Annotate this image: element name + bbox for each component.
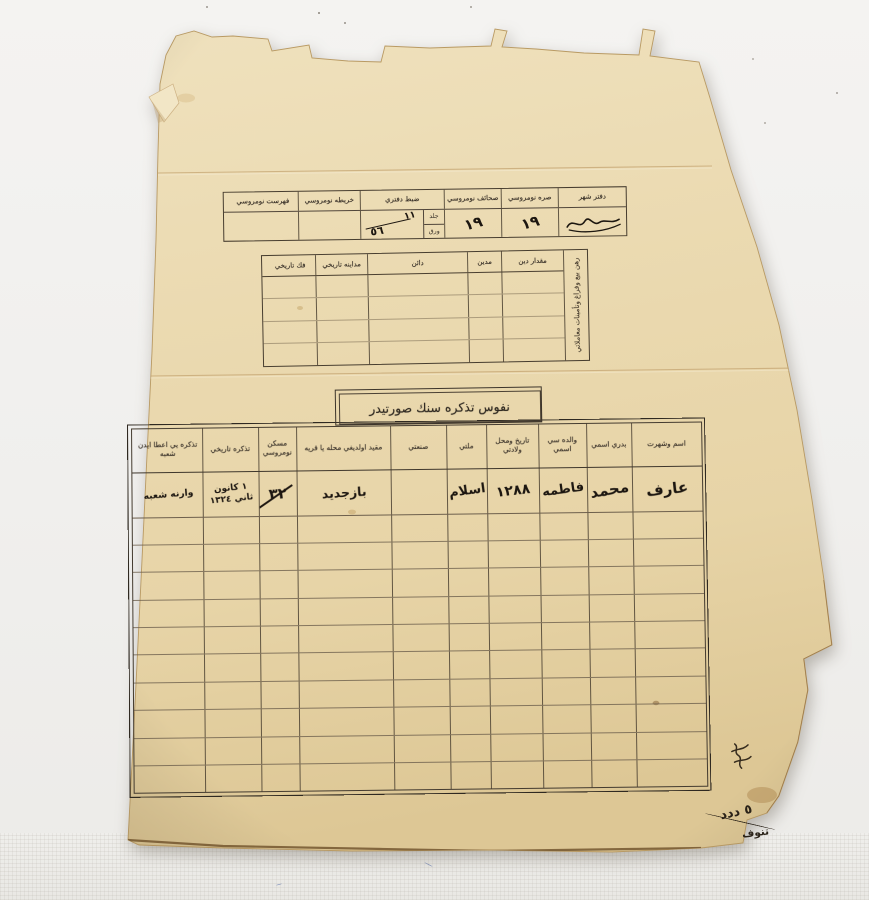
empty-cell bbox=[448, 651, 489, 678]
empty-cell bbox=[541, 650, 590, 677]
empty-cell bbox=[490, 761, 543, 788]
entry-religion-cell: اسلام bbox=[446, 469, 487, 514]
empty-cell bbox=[299, 763, 394, 791]
empty-cell bbox=[203, 627, 259, 654]
column-header-creditor: دائن bbox=[367, 252, 467, 274]
empty-cell bbox=[448, 624, 488, 651]
photo-stage: دفتر شهر صره نومروسي صحائف نومروسي ضبط د… bbox=[0, 0, 869, 900]
stain bbox=[747, 787, 777, 803]
empty-cell bbox=[266, 298, 316, 320]
empty-cell bbox=[634, 649, 705, 676]
census-inner-frame: اسم وشهرت بدري اسمي والده سي اسمي تاريخ … bbox=[131, 421, 708, 794]
column-header-residence-no: مسكن نومروسي bbox=[258, 427, 296, 470]
handwritten-religion: اسلام bbox=[448, 481, 486, 501]
column-header-mother-name: والده سي اسمي bbox=[538, 423, 587, 467]
empty-cell bbox=[368, 318, 468, 341]
signature-scribble bbox=[564, 212, 620, 235]
column-header-registered-place: مقيد اولديغي محله يا قريه bbox=[296, 426, 391, 470]
handwritten-father-name: محمد bbox=[589, 477, 630, 501]
empty-cell bbox=[204, 765, 261, 792]
entry-craft-cell bbox=[390, 469, 447, 514]
empty-cell bbox=[469, 340, 503, 362]
empty-cell bbox=[588, 567, 634, 594]
empty-cell bbox=[450, 762, 491, 789]
empty-cell bbox=[540, 623, 589, 650]
empty-cell bbox=[259, 571, 297, 598]
empty-cell bbox=[258, 516, 296, 543]
handwritten-issuing-branch: وارنه شعبه bbox=[143, 487, 194, 503]
handwritten-name: عارف bbox=[645, 477, 689, 499]
empty-cell bbox=[260, 709, 298, 736]
empty-cell bbox=[488, 596, 541, 623]
empty-cell bbox=[542, 761, 591, 788]
transactions-table: رهن بيع وفراغ وتأمينات معاملاتي مقدار دي… bbox=[261, 249, 590, 367]
empty-cell bbox=[136, 710, 205, 738]
zabt-defteri-value-cell: جلد ورق ١١ ٥٦ bbox=[360, 210, 444, 239]
empty-cell bbox=[136, 766, 205, 794]
empty-cell bbox=[317, 342, 369, 364]
varak-label: ورق bbox=[424, 224, 444, 238]
empty-cell bbox=[501, 271, 563, 294]
empty-cell bbox=[447, 514, 487, 541]
empty-cell bbox=[633, 594, 704, 621]
empty-cell bbox=[203, 572, 259, 599]
empty-cell bbox=[590, 705, 636, 732]
empty-cell bbox=[135, 627, 203, 654]
empty-cell bbox=[632, 539, 703, 566]
empty-cell bbox=[591, 760, 637, 787]
empty-cell bbox=[259, 599, 297, 626]
jild-label: جلد bbox=[424, 210, 444, 225]
empty-cell bbox=[259, 626, 297, 653]
empty-cell bbox=[447, 569, 487, 596]
column-header-fihrist-no: فهرست نومروسي bbox=[228, 192, 298, 212]
column-header-release-date: فك تاريخي bbox=[265, 255, 315, 276]
column-header-religion: ملتي bbox=[446, 425, 487, 469]
empty-cell bbox=[634, 621, 705, 648]
empty-cell bbox=[489, 678, 542, 705]
empty-cell bbox=[135, 683, 204, 710]
empty-cell bbox=[487, 568, 540, 595]
empty-cell bbox=[449, 734, 490, 761]
side-label-cell: رهن بيع وفراغ وتأمينات معاملاتي bbox=[563, 250, 589, 360]
reference-value-row: ١٩ ١٩ جلد ورق ١١ ٥٦ bbox=[224, 207, 626, 241]
empty-cell bbox=[203, 599, 259, 626]
empty-cell bbox=[134, 517, 202, 544]
empty-cell bbox=[539, 540, 587, 567]
empty-cell bbox=[502, 316, 564, 339]
empty-cell bbox=[636, 759, 707, 787]
empty-cell bbox=[316, 320, 368, 342]
empty-cell bbox=[588, 595, 634, 622]
empty-cell bbox=[392, 624, 449, 651]
empty-cell bbox=[587, 512, 632, 539]
empty-cell bbox=[589, 650, 635, 677]
empty-cell bbox=[202, 517, 258, 544]
empty-cell bbox=[135, 600, 203, 627]
column-header-name: اسم وشهرت bbox=[631, 422, 702, 466]
empty-cell bbox=[502, 294, 564, 317]
column-header-defter: دفتر شهر bbox=[558, 187, 626, 207]
empty-cell bbox=[589, 622, 635, 649]
empty-cell bbox=[261, 764, 299, 791]
fihrist-no-value-cell bbox=[228, 212, 298, 241]
empty-cell bbox=[134, 545, 202, 572]
entry-father-cell: محمد bbox=[586, 467, 632, 512]
entry-place-cell: بازجديد bbox=[296, 470, 391, 515]
empty-table-row bbox=[134, 759, 707, 793]
empty-cell bbox=[448, 596, 488, 623]
empty-cell bbox=[590, 733, 636, 760]
column-header-birth: تاريخ ومحل ولادتي bbox=[486, 424, 539, 468]
entry-mother-cell: فاطمه bbox=[538, 467, 587, 512]
empty-cell bbox=[487, 513, 539, 540]
column-header-sahife-no: صحائف نومروسي bbox=[444, 189, 501, 209]
empty-cell bbox=[203, 544, 259, 571]
handwritten-place: بازجديد bbox=[321, 484, 367, 502]
empty-cell bbox=[267, 343, 317, 365]
empty-cell bbox=[136, 738, 205, 766]
empty-cell bbox=[260, 681, 298, 708]
jild-varak-subcells: جلد ورق bbox=[423, 210, 444, 238]
empty-cell bbox=[260, 654, 298, 681]
jild-varak-values: ١١ ٥٦ bbox=[361, 210, 423, 239]
empty-cell bbox=[298, 625, 393, 653]
empty-cell bbox=[259, 544, 297, 571]
empty-cell bbox=[540, 568, 589, 595]
empty-cell bbox=[391, 569, 447, 596]
empty-cell bbox=[635, 732, 706, 760]
census-title-tab: نفوس تذكره سنك صورتيدر bbox=[335, 386, 543, 425]
stain bbox=[780, 800, 800, 812]
empty-cell bbox=[393, 735, 450, 762]
empty-cell bbox=[296, 515, 390, 543]
empty-cell bbox=[391, 542, 447, 569]
census-title: نفوس تذكره سنك صورتيدر bbox=[338, 390, 540, 424]
register-reference-table: دفتر شهر صره نومروسي صحائف نومروسي ضبط د… bbox=[223, 186, 628, 242]
empty-cell bbox=[635, 704, 706, 732]
empty-cell bbox=[449, 707, 490, 734]
empty-cell bbox=[467, 273, 501, 295]
empty-cell bbox=[540, 595, 589, 622]
empty-cell bbox=[369, 340, 469, 363]
empty-cell bbox=[490, 734, 543, 761]
empty-cell bbox=[367, 273, 467, 296]
empty-cell bbox=[589, 677, 635, 704]
census-entry-row: عارف محمد فاطمه ١٢٨٨ اسلام بازجديد ٣٢ bbox=[132, 466, 702, 518]
column-header-debt-date: مداينه تاريخي bbox=[315, 254, 367, 275]
empty-cell bbox=[204, 737, 261, 764]
entry-residence-cell: ٣٢ bbox=[258, 471, 296, 516]
empty-cell bbox=[587, 539, 633, 566]
empty-cell bbox=[393, 707, 450, 734]
column-header-craft: صنعتي bbox=[390, 425, 447, 469]
column-header-sira-no: صره نومروسي bbox=[501, 188, 558, 208]
empty-cell bbox=[503, 339, 565, 362]
census-header-row: اسم وشهرت بدري اسمي والده سي اسمي تاريخ … bbox=[132, 422, 702, 473]
empty-cell bbox=[135, 655, 204, 682]
empty-cell bbox=[135, 572, 203, 599]
column-header-certificate-date: تذكره تاريخي bbox=[202, 427, 258, 471]
empty-cell bbox=[393, 680, 450, 707]
empty-cell bbox=[265, 276, 315, 298]
empty-cell bbox=[297, 542, 392, 570]
empty-cell bbox=[541, 678, 590, 705]
empty-cell bbox=[447, 541, 487, 568]
empty-cell bbox=[204, 710, 261, 737]
empty-cell bbox=[298, 680, 393, 708]
column-header-debt-amount: مقدار دين bbox=[501, 250, 563, 271]
empty-cell bbox=[392, 652, 449, 679]
empty-cell bbox=[449, 679, 490, 706]
empty-cell bbox=[316, 297, 368, 319]
empty-cell bbox=[468, 317, 502, 339]
handwritten-number: ١٩ bbox=[519, 211, 541, 233]
empty-cell bbox=[392, 597, 449, 624]
empty-cell bbox=[266, 321, 316, 343]
empty-cell bbox=[315, 275, 367, 297]
empty-cell bbox=[299, 736, 394, 764]
empty-cell bbox=[298, 708, 393, 736]
handwritten-number: ٥٦ bbox=[369, 224, 384, 239]
empty-cell bbox=[542, 733, 591, 760]
empty-cell bbox=[539, 513, 587, 540]
ink-mark bbox=[727, 739, 758, 777]
empty-cell bbox=[298, 653, 393, 681]
empty-cell bbox=[203, 654, 259, 681]
sira-no-value-cell: ١٩ bbox=[501, 208, 558, 237]
empty-cell bbox=[487, 541, 539, 568]
empty-cell bbox=[297, 570, 392, 598]
column-header-harita-no: خريطه نومروسي bbox=[298, 191, 360, 211]
empty-cell bbox=[260, 737, 298, 764]
handwritten-number: ١٩ bbox=[462, 212, 484, 234]
handwritten-birth-year: ١٢٨٨ bbox=[495, 480, 531, 500]
empty-cell bbox=[489, 706, 542, 733]
entry-date-cell: ١ كانون ثاني ١٣٢٤ bbox=[202, 471, 258, 516]
column-header-zabt-defteri: ضبط دفتري bbox=[360, 190, 444, 210]
entry-branch-cell: وارنه شعبه bbox=[134, 472, 202, 517]
empty-cell bbox=[632, 511, 703, 538]
entry-name-cell: عارف bbox=[631, 466, 702, 511]
empty-table-row bbox=[264, 339, 565, 366]
empty-cell bbox=[394, 763, 451, 790]
entry-birth-cell: ١٢٨٨ bbox=[486, 468, 539, 513]
handwritten-certificate-date: ١ كانون ثاني ١٣٢٤ bbox=[202, 480, 258, 507]
sahife-no-value-cell: ١٩ bbox=[444, 209, 501, 238]
vertical-side-label: رهن بيع وفراغ وتأمينات معاملاتي bbox=[571, 253, 581, 357]
empty-cell bbox=[633, 566, 704, 593]
empty-cell bbox=[468, 295, 502, 317]
empty-cell bbox=[488, 623, 541, 650]
empty-cell bbox=[391, 514, 447, 541]
empty-cell bbox=[368, 296, 468, 319]
harita-no-value-cell bbox=[298, 211, 360, 240]
column-header-debtor: مدين bbox=[467, 252, 501, 273]
handwritten-residence-no: ٣٢ bbox=[268, 484, 288, 503]
empty-cell bbox=[297, 597, 392, 625]
empty-cell bbox=[542, 705, 591, 732]
census-table: اسم وشهرت بدري اسمي والده سي اسمي تاريخ … bbox=[127, 417, 711, 797]
defter-value-cell bbox=[558, 207, 626, 236]
column-header-issuing-branch: تذكره يي اعطا ايدن شعبه bbox=[134, 428, 202, 472]
empty-cell bbox=[489, 651, 542, 678]
column-header-father-name: بدري اسمي bbox=[586, 423, 632, 467]
stain bbox=[177, 94, 195, 103]
transactions-grid: مقدار دين مدين دائن مداينه تاريخي فك تار… bbox=[262, 250, 565, 366]
empty-cell bbox=[204, 682, 261, 709]
census-outer-frame: اسم وشهرت بدري اسمي والده سي اسمي تاريخ … bbox=[127, 417, 711, 797]
handwritten-mother-name: فاطمه bbox=[541, 479, 585, 500]
empty-cell bbox=[635, 676, 706, 703]
